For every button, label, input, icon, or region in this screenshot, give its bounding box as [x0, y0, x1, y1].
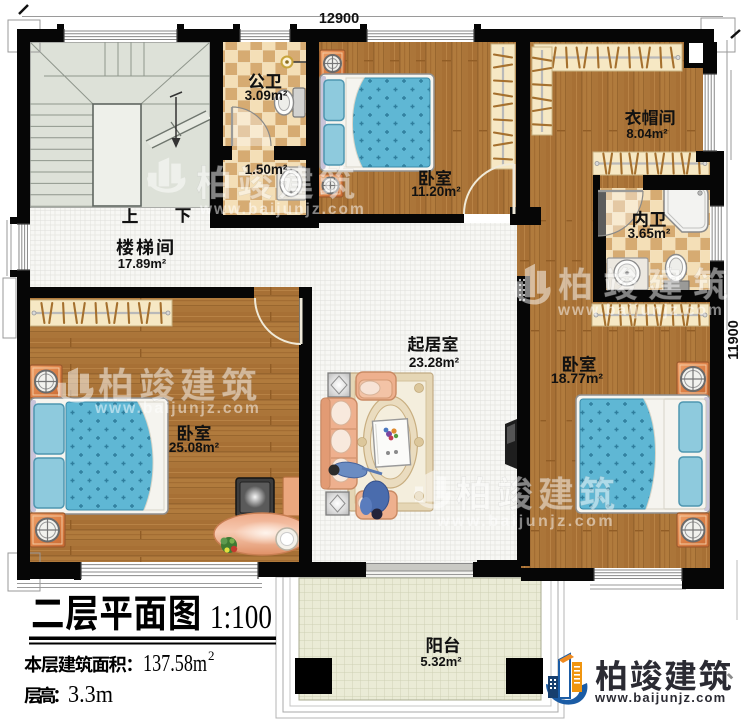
svg-text:3.3m: 3.3m — [68, 682, 113, 708]
svg-text:12900: 12900 — [319, 11, 359, 27]
svg-text:11.20m²: 11.20m² — [411, 184, 461, 199]
svg-text:1.50m²: 1.50m² — [245, 162, 288, 177]
svg-text:1:100: 1:100 — [210, 599, 272, 636]
svg-text:5.32m²: 5.32m² — [420, 654, 462, 669]
svg-text:www.baijunjz.com: www.baijunjz.com — [436, 513, 615, 530]
svg-text:www.baijunjz.com: www.baijunjz.com — [94, 400, 261, 417]
svg-text:25.08m²: 25.08m² — [169, 440, 220, 455]
svg-text:www.baijunjz.com: www.baijunjz.com — [557, 302, 724, 319]
svg-text:www.baijunjz.com: www.baijunjz.com — [199, 201, 366, 218]
svg-text:3.65m²: 3.65m² — [628, 226, 671, 241]
svg-text:3.09m²: 3.09m² — [245, 88, 288, 103]
svg-text:18.77m²: 18.77m² — [551, 370, 603, 386]
svg-text:11900: 11900 — [726, 320, 742, 360]
svg-text:23.28m²: 23.28m² — [409, 355, 460, 370]
svg-text:8.04m²: 8.04m² — [626, 126, 668, 141]
svg-text:137.58m: 137.58m — [143, 651, 207, 677]
svg-text:17.89m²: 17.89m² — [118, 256, 167, 271]
svg-text:www.baijunjz.com: www.baijunjz.com — [594, 690, 726, 705]
svg-text:2: 2 — [208, 648, 215, 663]
